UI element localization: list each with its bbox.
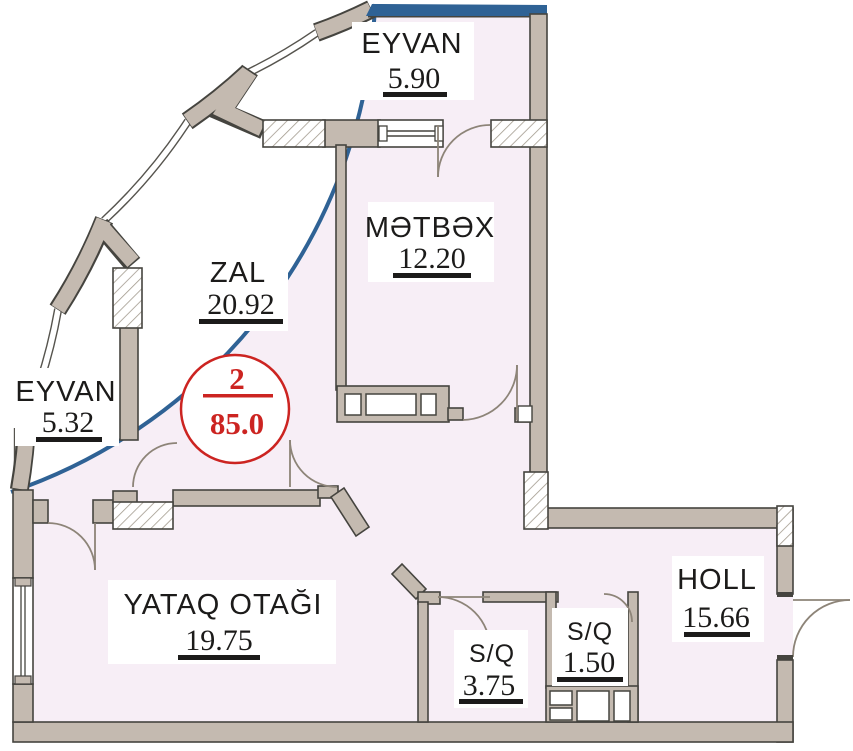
room-area: 19.75	[185, 624, 253, 657]
room-area: 12.20	[398, 242, 466, 275]
room-name: MƏTBƏX	[365, 212, 495, 244]
wall-kitchen-stub	[448, 408, 463, 420]
wall-bedroom-top-c	[173, 490, 320, 506]
bedroom-window	[13, 578, 33, 684]
top-blue-band	[366, 4, 547, 16]
room-name: EYVAN	[361, 28, 462, 60]
hatch-balcony-left	[263, 120, 325, 147]
wall-niche	[518, 406, 532, 422]
room-area: 5.32	[42, 406, 95, 439]
badge-divider	[203, 394, 273, 398]
room-area: 20.92	[207, 288, 275, 321]
room-name: S/Q	[567, 618, 613, 646]
room-name: S/Q	[469, 640, 515, 668]
hatch-eyvan-column	[113, 268, 142, 328]
hatch-balcony-right	[491, 120, 547, 147]
unit-badge: 2 85.0	[181, 355, 289, 463]
hatch-bedroom-wall	[113, 502, 173, 529]
wall-kitchen-left	[336, 145, 346, 390]
wall-left-upper	[13, 490, 33, 578]
wall-right-upper	[530, 14, 547, 508]
counter-windows	[345, 394, 436, 415]
area-underline	[684, 632, 750, 637]
wall-holl-top	[530, 508, 793, 528]
hatch-holl-column	[524, 472, 548, 529]
wall-bedroom-top-b	[93, 500, 115, 523]
hatch-entrance-top	[777, 506, 793, 546]
area-underline	[393, 273, 471, 278]
room-name: YATAQ OTAĞI	[124, 588, 323, 621]
area-underline	[383, 92, 447, 97]
floor-plan-page: EYVAN 5.90 MƏTBƏX 12.20 ZAL 20.92 EYVAN …	[0, 0, 853, 751]
wall-left-lower	[13, 684, 33, 722]
room-area: 1.50	[563, 646, 616, 679]
wall-bedroom-top-a	[33, 500, 48, 523]
area-underline	[199, 319, 283, 324]
room-area: 3.75	[463, 669, 516, 702]
area-underline	[459, 699, 523, 704]
floor-plan-drawing: EYVAN 5.90 MƏTBƏX 12.20 ZAL 20.92 EYVAN …	[0, 0, 853, 751]
wall-bottom	[13, 722, 793, 742]
wall-eyvan-left-right	[120, 325, 138, 440]
room-name: HOLL	[677, 564, 757, 596]
badge-total-area: 85.0	[210, 406, 264, 441]
area-underline	[36, 437, 102, 442]
badge-rooms-count: 2	[229, 361, 245, 396]
wall-balcony-rail	[323, 120, 380, 147]
balcony-window	[378, 120, 443, 147]
wall-sq-left	[418, 602, 428, 722]
room-name: ZAL	[210, 257, 266, 289]
area-underline	[178, 655, 260, 660]
room-area: 5.90	[388, 62, 441, 95]
area-underline	[557, 677, 623, 682]
room-label-holl: HOLL 15.66	[677, 564, 757, 637]
room-label-sq-large: S/Q 3.75	[459, 640, 523, 704]
room-area: 15.66	[682, 601, 750, 634]
room-name: EYVAN	[15, 376, 116, 408]
